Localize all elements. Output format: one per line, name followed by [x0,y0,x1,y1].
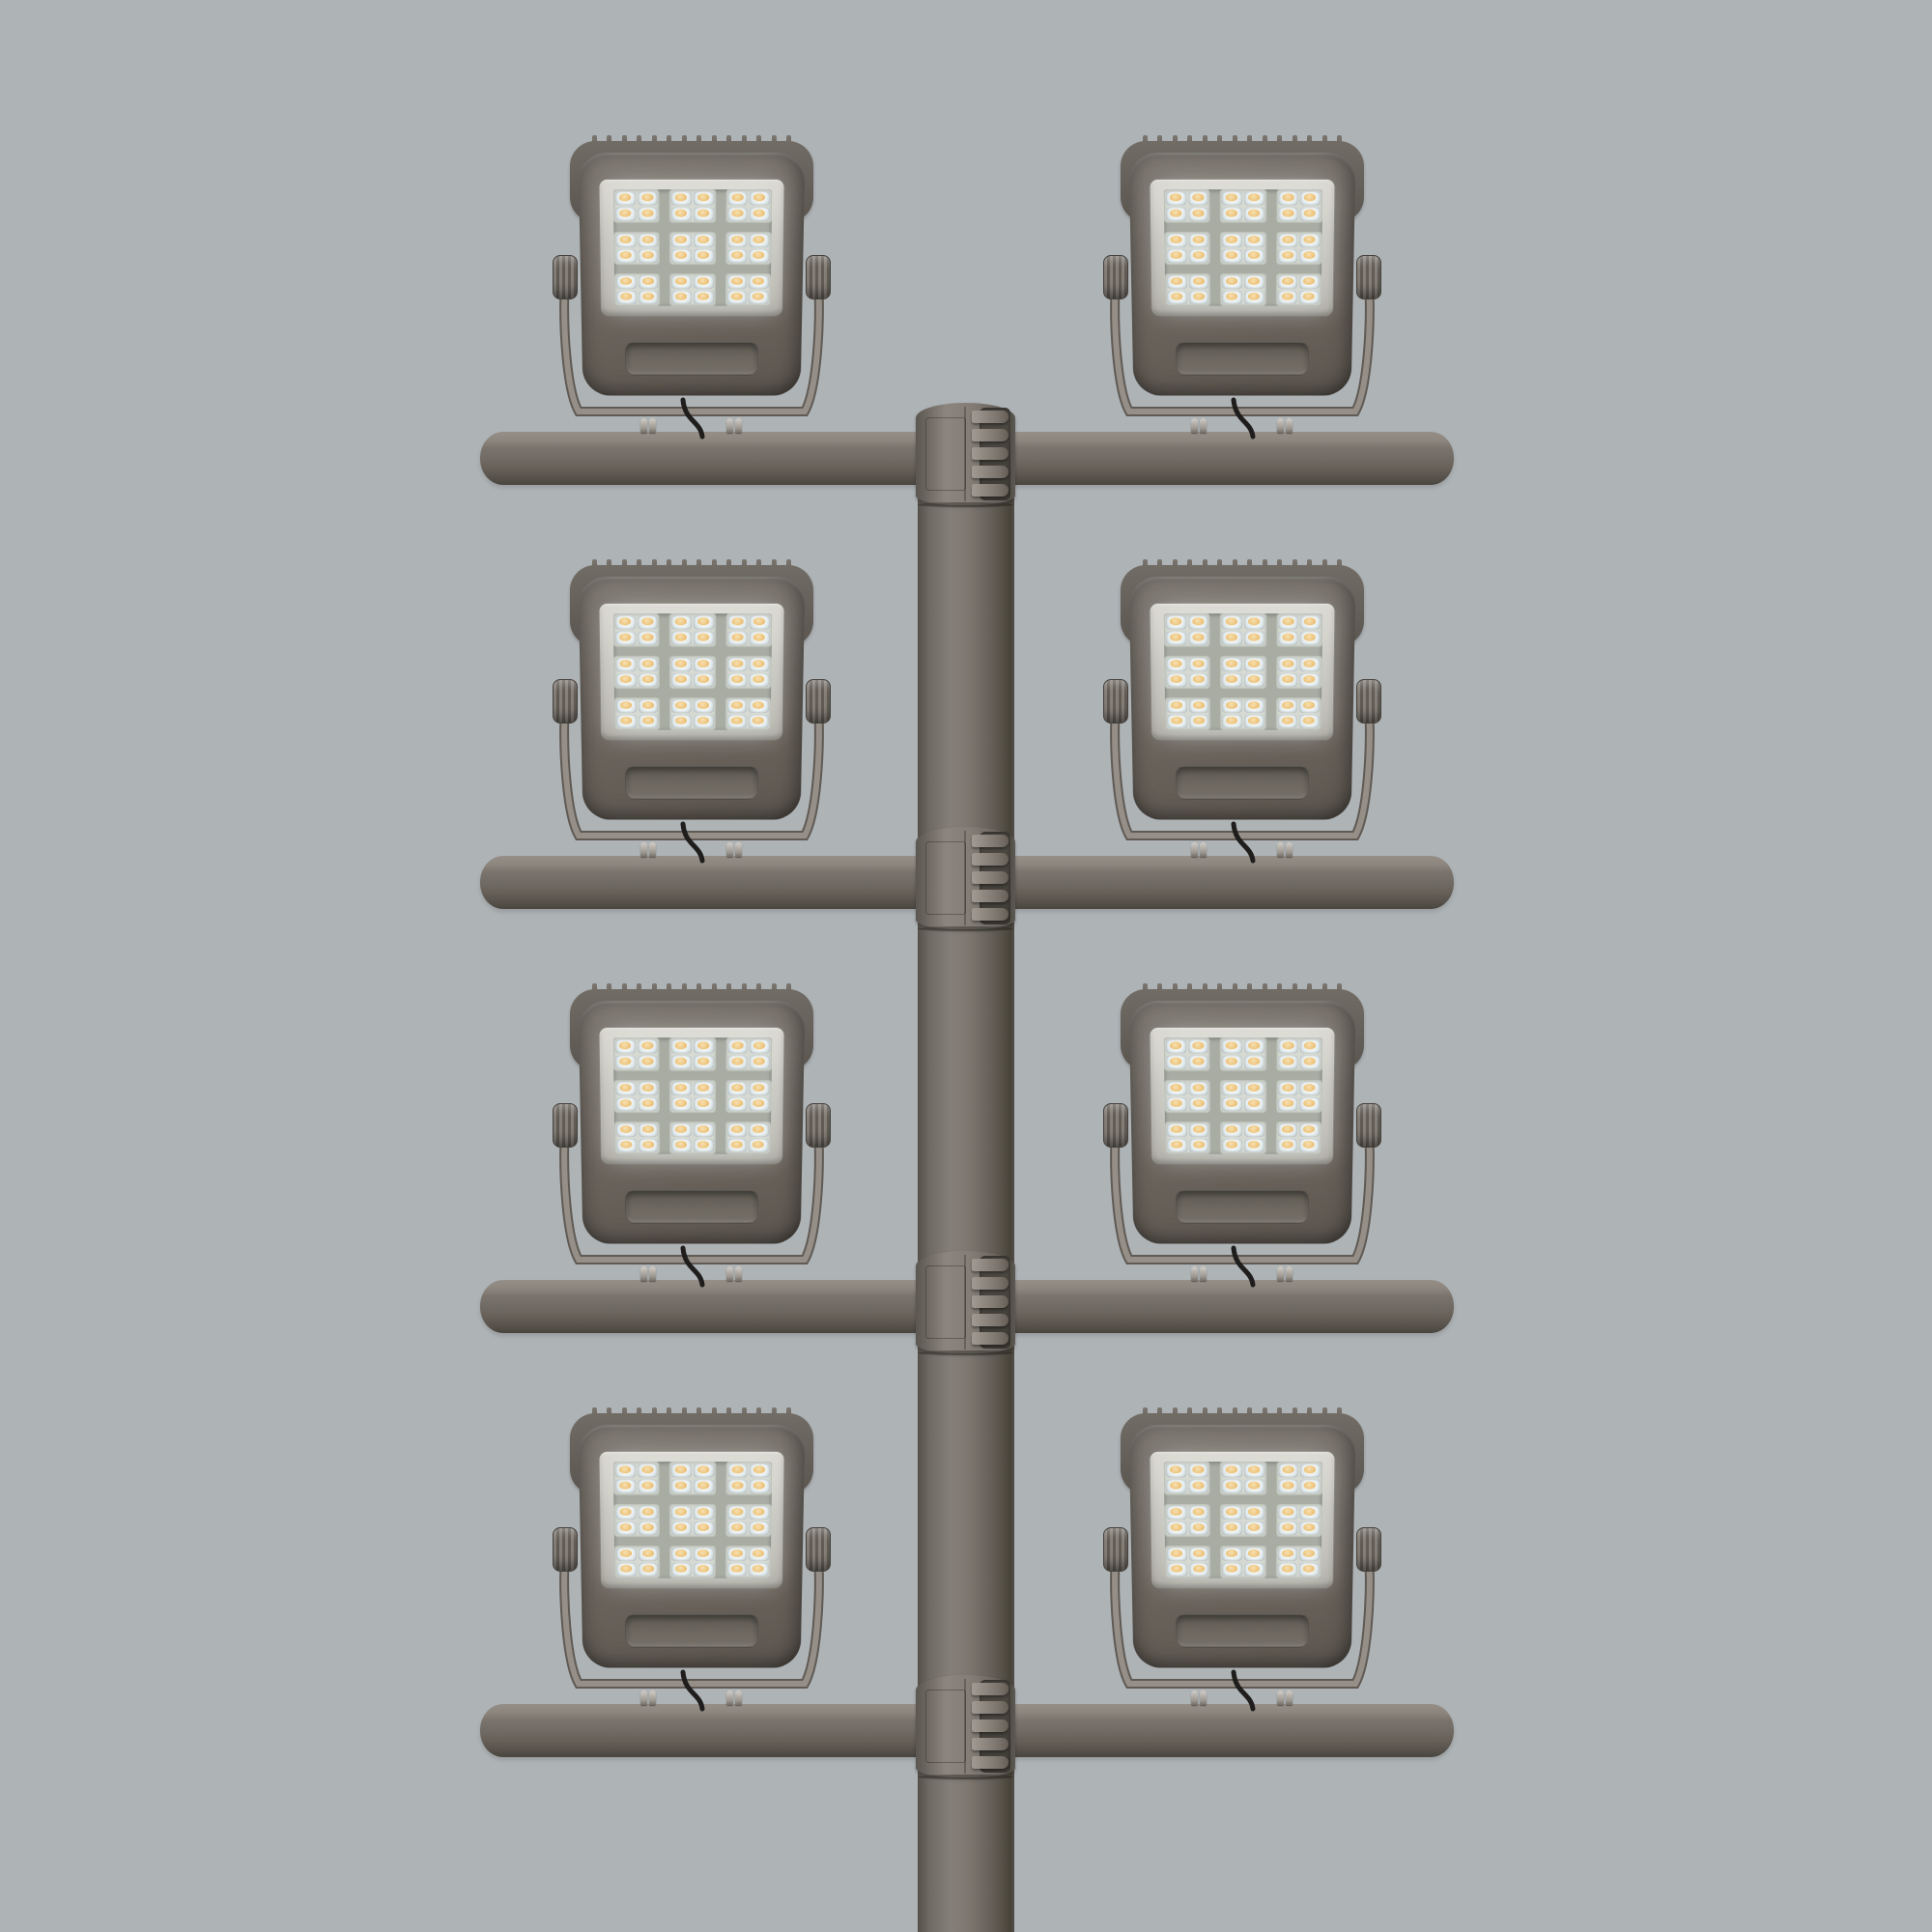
led-phosphor-dot [731,717,743,724]
led-lens [694,715,714,728]
led-module [1164,656,1210,689]
led-lens [749,1548,769,1561]
led-lens [727,191,748,205]
led-lens [1278,673,1298,687]
led-module [669,1080,716,1113]
floodlight-pole-scene [0,0,1932,1932]
led-phosphor-dot [642,675,654,683]
led-lens [671,1480,692,1493]
led-phosphor-dot [1192,1041,1204,1049]
led-lens [727,249,748,263]
led-phosphor-dot [1248,1125,1260,1132]
led-phosphor-dot [675,1125,687,1132]
led-lens [1278,191,1298,205]
led-phosphor-dot [1303,1141,1315,1148]
led-lens [638,1521,658,1535]
led-module [1220,1122,1265,1154]
led-module [1276,1462,1322,1495]
led-lens [1244,658,1264,671]
led-phosphor-dot [641,236,653,243]
floodlight-fixture [1127,983,1357,1307]
led-phosphor-dot [1193,1549,1205,1556]
led-lens [694,1480,714,1493]
led-module [669,1122,715,1154]
led-lens [1222,234,1242,247]
led-lens [1188,615,1208,629]
led-lens [1189,291,1209,304]
led-lens [616,1097,637,1111]
led-lens [1222,1521,1242,1535]
led-module [669,613,716,647]
led-module [1220,1080,1266,1113]
led-phosphor-dot [675,717,687,724]
led-lens [671,1097,692,1111]
led-phosphor-dot [1303,701,1315,708]
led-lens [1166,615,1186,629]
led-phosphor-dot [1282,193,1293,201]
led-lens [749,715,769,728]
led-phosphor-dot [753,617,765,625]
power-cable [1234,1248,1253,1285]
pole-junction [916,1251,1015,1353]
led-module [613,1037,660,1071]
led-phosphor-dot [1303,1565,1315,1572]
led-lens [1300,191,1321,205]
led-phosphor-dot [619,617,631,625]
led-phosphor-dot [620,1565,632,1572]
led-phosphor-dot [1226,210,1237,217]
led-phosphor-dot [1192,617,1204,625]
junction-tooth [972,1332,1009,1345]
led-phosphor-dot [1170,634,1181,641]
led-phosphor-dot [753,1099,765,1107]
led-phosphor-dot [1282,617,1293,625]
junction-tooth [972,1738,1009,1750]
led-phosphor-dot [731,251,743,259]
led-module [1276,1080,1322,1113]
led-lens [638,249,658,263]
led-lens [671,1139,692,1152]
led-phosphor-dot [1171,277,1182,284]
junction-plate [925,841,966,915]
mount-stud [726,1266,733,1281]
led-phosphor-dot [731,293,743,299]
led-lens [616,1563,637,1577]
junction-seam-line [964,831,966,925]
led-module [613,613,660,647]
led-module [669,1546,715,1578]
led-phosphor-dot [1192,634,1204,641]
floodlight-fixture [577,983,807,1307]
led-module [1275,1122,1321,1154]
led-phosphor-dot [1226,634,1237,641]
led-lens [671,699,692,713]
led-lens [1167,699,1187,713]
led-phosphor-dot [753,717,764,724]
led-phosphor-dot [1282,210,1293,217]
led-lens [1188,673,1208,687]
cover-recess [625,766,758,800]
led-lens [694,275,714,289]
led-phosphor-dot [675,1084,687,1092]
led-phosphor-dot [1193,251,1205,259]
mount-stud [640,418,647,433]
fixture-body-group [578,1001,805,1244]
fixture-body-group [578,1425,805,1668]
led-bezel [598,179,784,317]
led-lens [726,291,747,304]
led-lens [615,1480,636,1493]
led-phosphor-dot [641,1084,653,1092]
led-phosphor-dot [1303,717,1315,724]
led-phosphor-dot [642,1565,654,1572]
junction-seam-line [964,1679,966,1774]
led-phosphor-dot [753,660,765,668]
power-cable [1234,824,1253,861]
led-module [1220,1546,1265,1578]
led-lens [727,1056,748,1069]
mount-stud [1191,1266,1198,1281]
led-lens [616,291,637,304]
led-phosphor-dot [1226,193,1237,201]
floodlight-fixture [1127,1407,1357,1731]
led-lens [1189,1563,1209,1577]
led-bezel [598,1451,784,1589]
yoke-knob-left [1103,1527,1128,1572]
led-phosphor-dot [1303,293,1315,299]
junction-tooth [972,1295,1009,1308]
led-lens [1244,208,1264,221]
led-lens [750,615,770,629]
led-lens [1188,208,1208,221]
led-module [725,1037,772,1071]
led-lens [615,1056,636,1069]
led-phosphor-dot [1282,236,1293,243]
led-glass [1164,189,1322,306]
led-lens [1222,1506,1242,1520]
floodlight-fixture [1127,559,1357,883]
led-lens [616,699,637,713]
led-lens [749,699,769,713]
led-phosphor-dot [1304,617,1316,625]
led-lens [726,715,747,728]
led-phosphor-dot [753,1141,764,1148]
junction-tooth [972,1314,1009,1326]
mount-stud [1200,1690,1207,1705]
yoke-knob-right [806,255,831,299]
yoke-knob-left [553,679,578,724]
led-lens [694,632,714,645]
junction-tooth [972,1756,1009,1769]
led-phosphor-dot [675,617,687,625]
led-phosphor-dot [753,1565,764,1572]
led-lens [1167,249,1187,263]
led-phosphor-dot [620,701,632,708]
led-phosphor-dot [1193,1099,1205,1107]
led-lens [750,1463,770,1477]
led-phosphor-dot [1248,210,1260,217]
led-lens [1299,673,1320,687]
led-lens [1300,1039,1321,1053]
led-module [1164,613,1210,647]
led-lens [750,1056,770,1069]
led-lens [1300,658,1321,671]
fixture-body-group [1128,1001,1355,1244]
led-lens [1166,632,1186,645]
led-lens [727,275,748,289]
led-phosphor-dot [697,1523,709,1531]
led-lens [1166,234,1186,247]
led-lens [1222,1056,1242,1069]
floodlight-fixture [1127,135,1357,459]
led-phosphor-dot [1304,1523,1316,1531]
led-lens [616,1123,637,1137]
led-phosphor-dot [620,236,632,243]
fixture-body-group [578,153,805,396]
led-lens [1278,1123,1298,1137]
led-lens [1189,1123,1209,1137]
led-phosphor-dot [697,277,709,284]
led-phosphor-dot [641,1058,653,1065]
led-phosphor-dot [1171,660,1182,668]
led-lens [1167,1097,1187,1111]
led-lens [1189,699,1209,713]
yoke-knob-left [553,1103,578,1148]
led-lens [1299,1521,1320,1535]
led-module [1164,1504,1210,1537]
led-module [725,1080,772,1113]
led-phosphor-dot [675,1508,687,1516]
yoke-knob-left [1103,255,1128,299]
junction-plate [925,1265,966,1339]
led-phosphor-dot [619,634,631,641]
led-lens [1300,1056,1321,1069]
led-lens [750,208,770,221]
led-phosphor-dot [753,1549,764,1556]
led-phosphor-dot [1193,277,1205,284]
led-phosphor-dot [1248,617,1260,625]
led-lens [750,632,770,645]
mount-stud [1286,418,1293,433]
mount-stud [649,842,656,857]
power-cable [683,1672,702,1709]
power-cable [683,824,702,861]
led-lens [671,615,692,629]
led-phosphor-dot [1248,1465,1260,1473]
led-lens [749,1521,769,1535]
led-module [1276,613,1322,647]
led-lens [694,615,714,629]
led-phosphor-dot [1226,251,1237,259]
led-module [724,273,771,306]
led-phosphor-dot [1170,1482,1181,1490]
led-module [724,1546,771,1578]
led-phosphor-dot [753,701,764,708]
led-phosphor-dot [731,1482,743,1490]
led-phosphor-dot [731,236,743,243]
led-phosphor-dot [753,293,764,299]
cover-recess [1176,766,1309,800]
led-lens [1244,191,1264,205]
led-lens [726,1139,747,1152]
led-phosphor-dot [697,717,709,724]
led-lens [1188,1463,1208,1477]
led-lens [1300,632,1321,645]
led-phosphor-dot [619,1041,631,1049]
led-phosphor-dot [1226,1099,1237,1107]
led-module [1220,189,1266,223]
led-glass [1164,1462,1322,1578]
led-lens [1166,208,1186,221]
mount-stud [1200,418,1207,433]
led-phosphor-dot [1171,1565,1182,1572]
led-phosphor-dot [697,1099,709,1107]
led-lens [1167,1139,1187,1152]
led-phosphor-dot [620,1523,632,1531]
led-phosphor-dot [697,675,709,683]
led-lens [749,1123,769,1137]
led-lens [615,234,636,247]
led-phosphor-dot [1226,277,1237,284]
led-module [1220,697,1265,730]
led-lens [639,1548,659,1561]
led-module [669,697,715,730]
led-lens [1189,1548,1209,1561]
led-phosphor-dot [1282,1125,1293,1132]
led-lens [727,673,748,687]
cover-recess [1176,1614,1309,1648]
power-cable [683,1248,702,1285]
led-phosphor-dot [1226,1084,1237,1092]
led-module [1276,1037,1322,1071]
led-lens [615,615,636,629]
led-lens [694,291,714,304]
led-module [1276,656,1322,689]
led-lens [1188,1039,1208,1053]
led-phosphor-dot [642,701,654,708]
led-phosphor-dot [1226,617,1237,625]
led-phosphor-dot [1192,210,1204,217]
led-bezel [598,603,784,741]
led-lens [615,1506,636,1520]
led-lens [1222,615,1242,629]
led-phosphor-dot [697,1041,709,1049]
led-phosphor-dot [1193,1523,1205,1531]
led-lens [639,275,659,289]
led-phosphor-dot [697,251,709,259]
led-phosphor-dot [753,1482,765,1490]
power-cable [683,400,702,437]
led-phosphor-dot [731,1084,743,1092]
led-phosphor-dot [1192,236,1204,243]
led-lens [749,291,769,304]
led-module [725,1504,772,1537]
led-lens [1222,1123,1242,1137]
junction-tooth [972,447,1009,460]
led-lens [1277,1563,1297,1577]
mount-stud [1277,1690,1284,1705]
junction-tooth [972,1277,1009,1290]
led-phosphor-dot [1248,634,1260,641]
led-lens [1299,291,1320,304]
led-lens [1167,291,1187,304]
yoke-knob-right [1356,255,1381,299]
led-phosphor-dot [1192,193,1204,201]
led-lens [1244,291,1264,304]
led-lens [671,234,692,247]
led-phosphor-dot [1304,193,1316,201]
led-module [1220,273,1265,306]
mount-stud [735,1690,742,1705]
led-phosphor-dot [1304,1058,1316,1065]
led-phosphor-dot [1282,1549,1293,1556]
led-lens [615,1039,636,1053]
led-glass [613,1037,772,1154]
led-phosphor-dot [1226,1523,1237,1531]
led-module [669,1462,716,1495]
led-phosphor-dot [731,1058,743,1065]
mount-stud [726,1690,733,1705]
led-phosphor-dot [697,1549,709,1556]
led-phosphor-dot [641,1482,653,1490]
led-phosphor-dot [1171,717,1182,724]
junction-seam-line [964,407,966,501]
led-phosphor-dot [1226,1125,1237,1132]
mount-stud [1286,1690,1293,1705]
led-phosphor-dot [641,660,653,668]
led-phosphor-dot [1304,634,1316,641]
led-phosphor-dot [675,701,687,708]
led-lens [638,1082,658,1095]
led-lens [727,1480,748,1493]
led-phosphor-dot [1192,1058,1204,1065]
led-phosphor-dot [1226,717,1237,724]
led-lens [1222,632,1242,645]
led-phosphor-dot [642,1523,654,1531]
led-lens [750,658,770,671]
led-lens [671,632,692,645]
led-lens [638,1039,658,1053]
led-lens [1277,715,1297,728]
junction-seam-line [964,1255,966,1350]
mount-stud [726,842,733,857]
junction-tooth [972,1719,1009,1732]
led-lens [1300,1480,1321,1493]
led-module [725,232,772,265]
led-phosphor-dot [1303,1549,1315,1556]
led-lens [1166,1480,1186,1493]
led-lens [1278,615,1298,629]
junction-bottom-seam [918,1350,1013,1355]
led-lens [1222,1480,1242,1493]
led-phosphor-dot [1248,1099,1260,1107]
led-lens [694,1521,714,1535]
led-module [1165,1546,1211,1578]
led-phosphor-dot [697,193,709,201]
led-lens [639,699,659,713]
led-module [1165,1122,1211,1154]
led-phosphor-dot [1248,660,1260,668]
led-phosphor-dot [697,210,709,217]
led-phosphor-dot [641,210,653,217]
led-phosphor-dot [1171,1549,1182,1556]
junction-bottom-seam [918,926,1013,931]
led-lens [1299,1097,1320,1111]
led-lens [750,191,770,205]
led-phosphor-dot [1248,1508,1260,1516]
yoke-knob-left [553,1527,578,1572]
led-lens [1188,1097,1208,1111]
